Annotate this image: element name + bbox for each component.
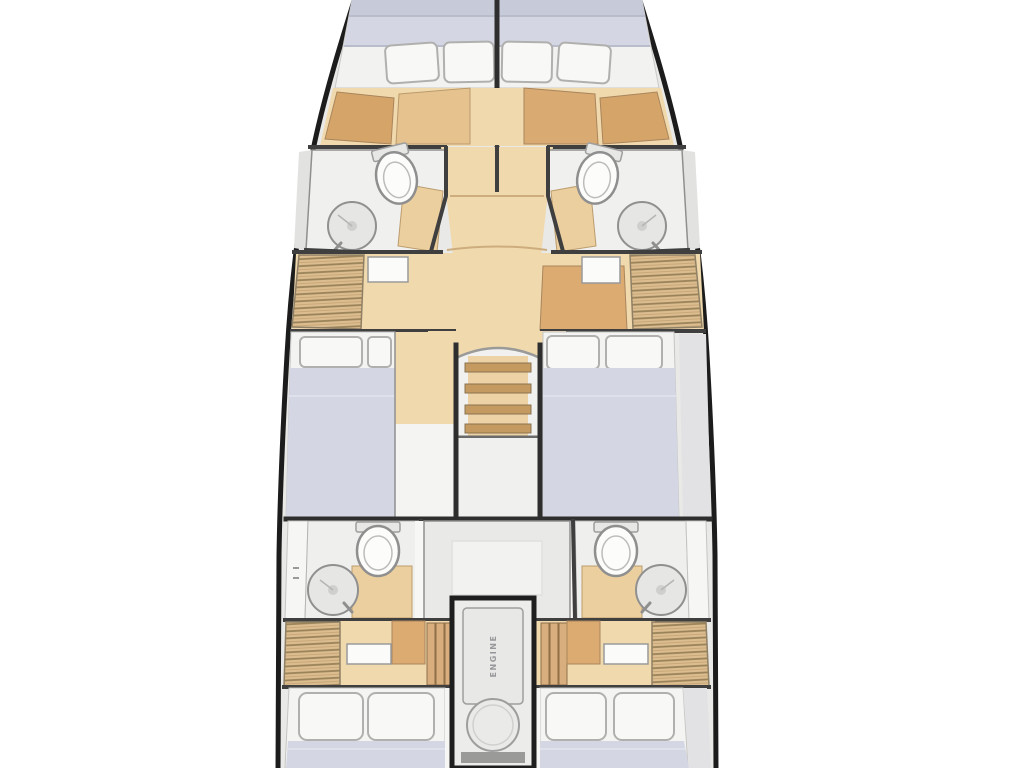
panel-hatch — [452, 541, 542, 595]
pillow — [546, 693, 606, 740]
desk-shelf — [604, 644, 648, 664]
engine-label: ENGINE — [489, 635, 498, 678]
louvered-wardrobe — [427, 623, 435, 685]
rattan-locker — [652, 622, 709, 686]
louvered-wardrobe — [559, 623, 567, 685]
mid-locker-band — [292, 252, 704, 331]
side-table — [582, 257, 620, 283]
toilet-icon — [356, 522, 400, 576]
mid-cabin-starboard — [543, 332, 711, 518]
cabinet — [567, 621, 600, 664]
mid-cabin-port — [286, 332, 456, 518]
shower-stall — [285, 521, 308, 619]
cabinet — [392, 621, 425, 664]
wardrobe-stbd-inner — [524, 88, 598, 144]
stair-step — [465, 405, 531, 414]
aft-cabin-starboard — [532, 688, 711, 768]
cabin-floor-white — [395, 424, 456, 518]
side-deck — [679, 334, 711, 518]
landing-floor — [458, 438, 538, 518]
door-strip — [415, 521, 424, 619]
bed-mattress — [286, 368, 395, 518]
forward-corridor — [441, 147, 553, 256]
pillow — [557, 42, 612, 84]
shower-icon — [308, 565, 358, 615]
aft-head-port — [285, 521, 421, 619]
pillow — [368, 337, 391, 367]
yacht-floor-plan-page: ENGINE — [0, 0, 1024, 768]
toilet-icon — [594, 522, 638, 576]
stair-step — [465, 424, 531, 433]
shower-icon — [636, 565, 686, 615]
fore-wardrobes — [310, 88, 684, 147]
shower-stall — [686, 521, 709, 619]
rattan-locker — [292, 255, 364, 329]
louvered-wardrobe — [541, 623, 549, 685]
fore-head-starboard — [548, 142, 700, 255]
rattan-locker — [630, 255, 702, 329]
engine-icon — [467, 699, 519, 751]
pillow — [502, 42, 553, 83]
wardrobe-port-inner — [396, 88, 470, 144]
pillow — [299, 693, 363, 740]
louvered-wardrobe — [550, 623, 558, 685]
aft-cabin-port — [285, 688, 453, 768]
pillow — [300, 337, 362, 367]
bed-mattress — [540, 741, 689, 768]
pillow — [614, 693, 674, 740]
head-wall — [573, 521, 575, 619]
wardrobe-port-outer — [325, 92, 394, 144]
side-table — [368, 257, 408, 282]
bed-mattress — [543, 368, 679, 518]
fore-head-port — [294, 142, 446, 255]
yacht-floor-plan: ENGINE — [0, 0, 1024, 768]
engine-mount — [461, 752, 525, 763]
engine-room: ENGINE — [452, 598, 534, 768]
stair-step — [465, 384, 531, 393]
pillow — [444, 42, 495, 83]
rattan-locker — [284, 622, 340, 686]
desk-shelf — [347, 644, 391, 664]
bed-mattress — [286, 741, 445, 768]
pillow — [385, 42, 440, 84]
wardrobe-stbd-outer — [600, 92, 669, 144]
pillow — [368, 693, 434, 740]
pillow — [606, 336, 662, 369]
pillow — [547, 336, 599, 369]
aft-head-starboard — [573, 521, 709, 619]
louvered-wardrobe — [436, 623, 444, 685]
stair-step — [465, 363, 531, 372]
